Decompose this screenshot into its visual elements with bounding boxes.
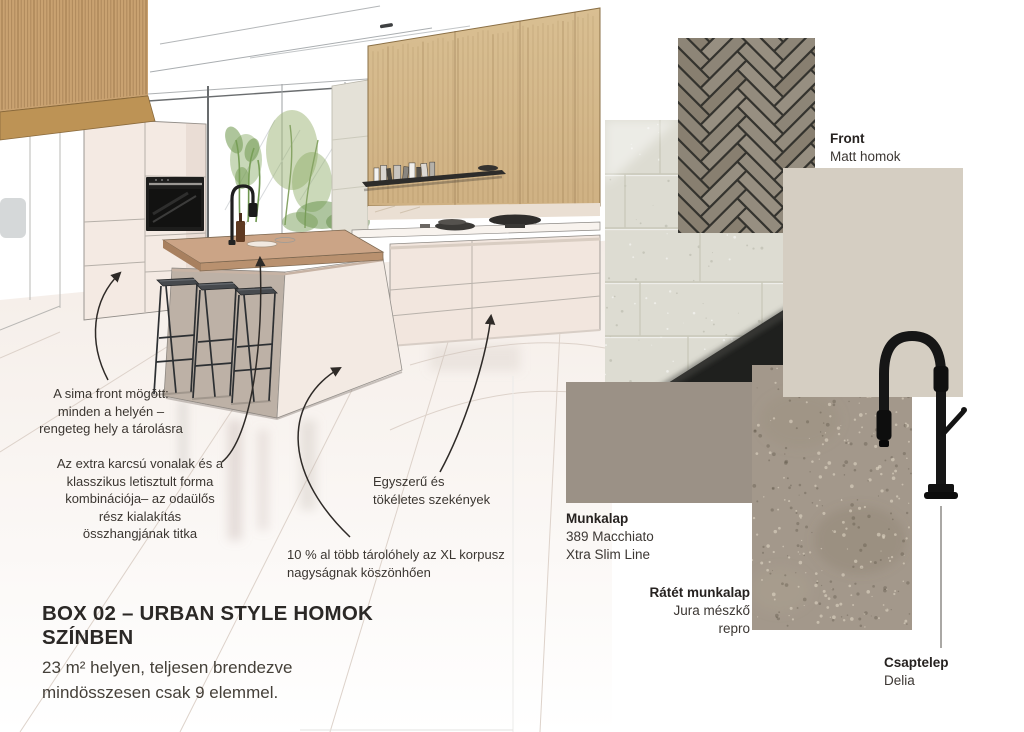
page-subtitle: 23 m² helyen, teljesen brendezve mindöss… (42, 655, 292, 705)
shelf-bowl (478, 165, 498, 171)
counter-bowl (489, 215, 541, 226)
material-worktop-name: Munkalap (566, 510, 654, 528)
ceiling-vent (380, 23, 393, 28)
plate (247, 241, 277, 247)
material-label-overlay-worktop: Rátét munkalap Jura mészkő repro (649, 584, 750, 638)
soap-bottle (236, 221, 245, 242)
annotation-lines-note: Az extra karcsú vonalak és a klasszikus … (38, 455, 242, 543)
page-title: BOX 02 – URBAN STYLE HOMOK SZÍNBEN (42, 602, 373, 649)
macchiato-swatch (566, 382, 752, 503)
material-tap-name: Csaptelep (884, 654, 949, 672)
material-overlay-value: Jura mészkő repro (649, 602, 750, 638)
material-tap-value: Delia (884, 672, 949, 690)
moodboard-page: A sima front mögött: minden a helyén – r… (0, 0, 1024, 732)
right-counter (352, 222, 600, 238)
concrete-pillar (332, 80, 368, 236)
annotation-storage-note: 10 % al több tárolóhely az XL korpusz na… (287, 546, 537, 581)
material-front-value: Matt homok (830, 148, 901, 166)
wood-slat-panel (0, 0, 148, 112)
material-label-tap: Csaptelep Delia (884, 654, 949, 690)
annotation-front-note: A sima front mögött: minden a helyén – r… (30, 385, 192, 438)
material-label-worktop: Munkalap 389 Macchiato Xtra Slim Line (566, 510, 654, 564)
base-cabinets-right (390, 235, 600, 346)
material-label-front: Front Matt homok (830, 130, 901, 166)
sofa-hint (0, 198, 26, 238)
material-front-name: Front (830, 130, 901, 148)
backsplash (368, 203, 600, 220)
material-overlay-name: Rátét munkalap (649, 584, 750, 602)
annotation-cabinets-note: Egyszerű és tökéletes szekények (373, 473, 543, 508)
material-worktop-value: 389 Macchiato Xtra Slim Line (566, 528, 654, 564)
